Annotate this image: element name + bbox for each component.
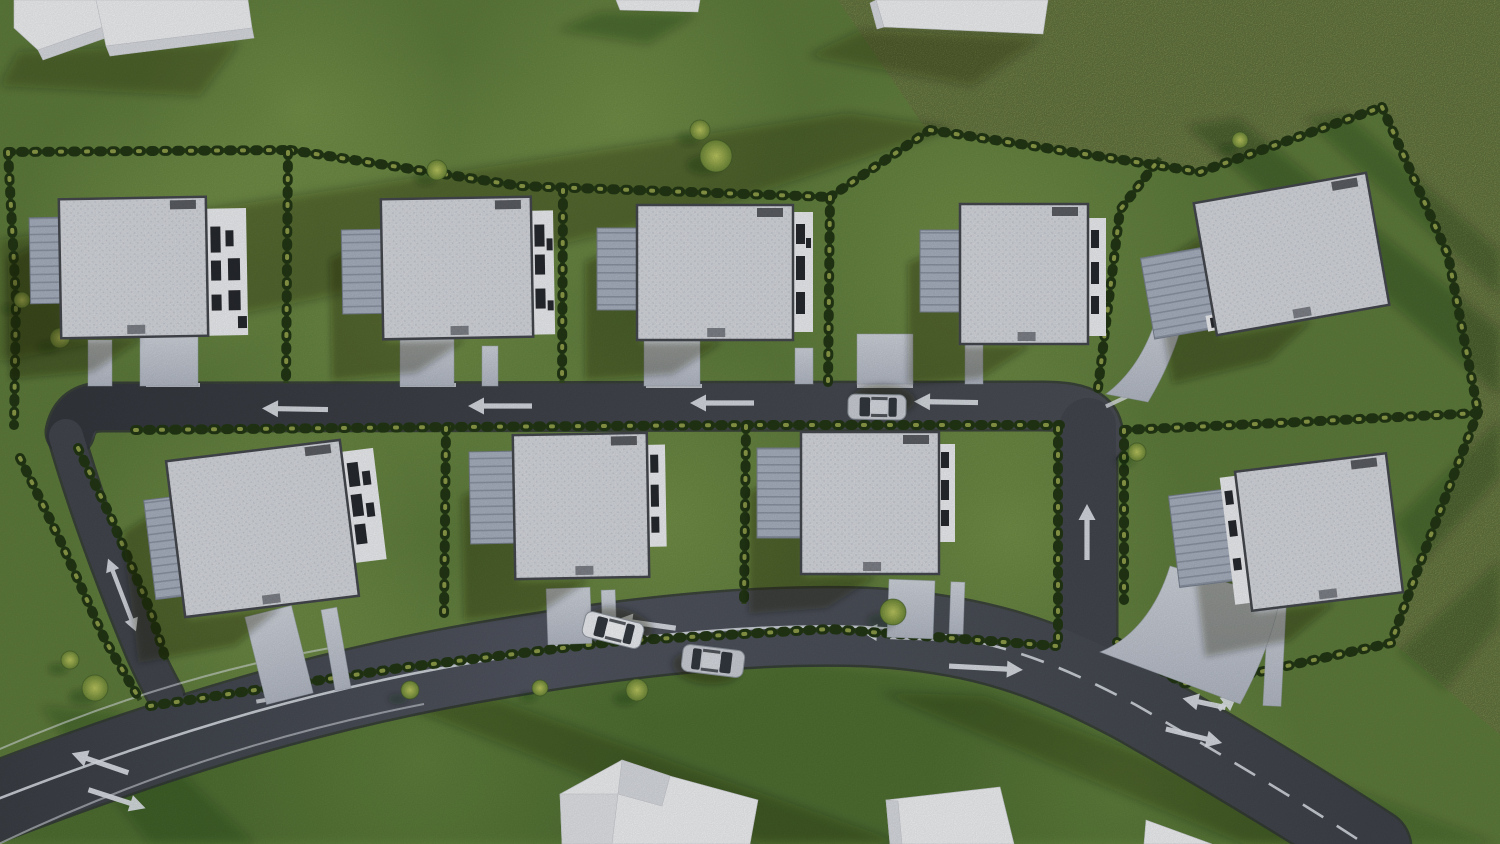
scene-svg bbox=[0, 0, 1500, 844]
site-plan-render bbox=[0, 0, 1500, 844]
grain-overlay bbox=[0, 0, 1500, 844]
